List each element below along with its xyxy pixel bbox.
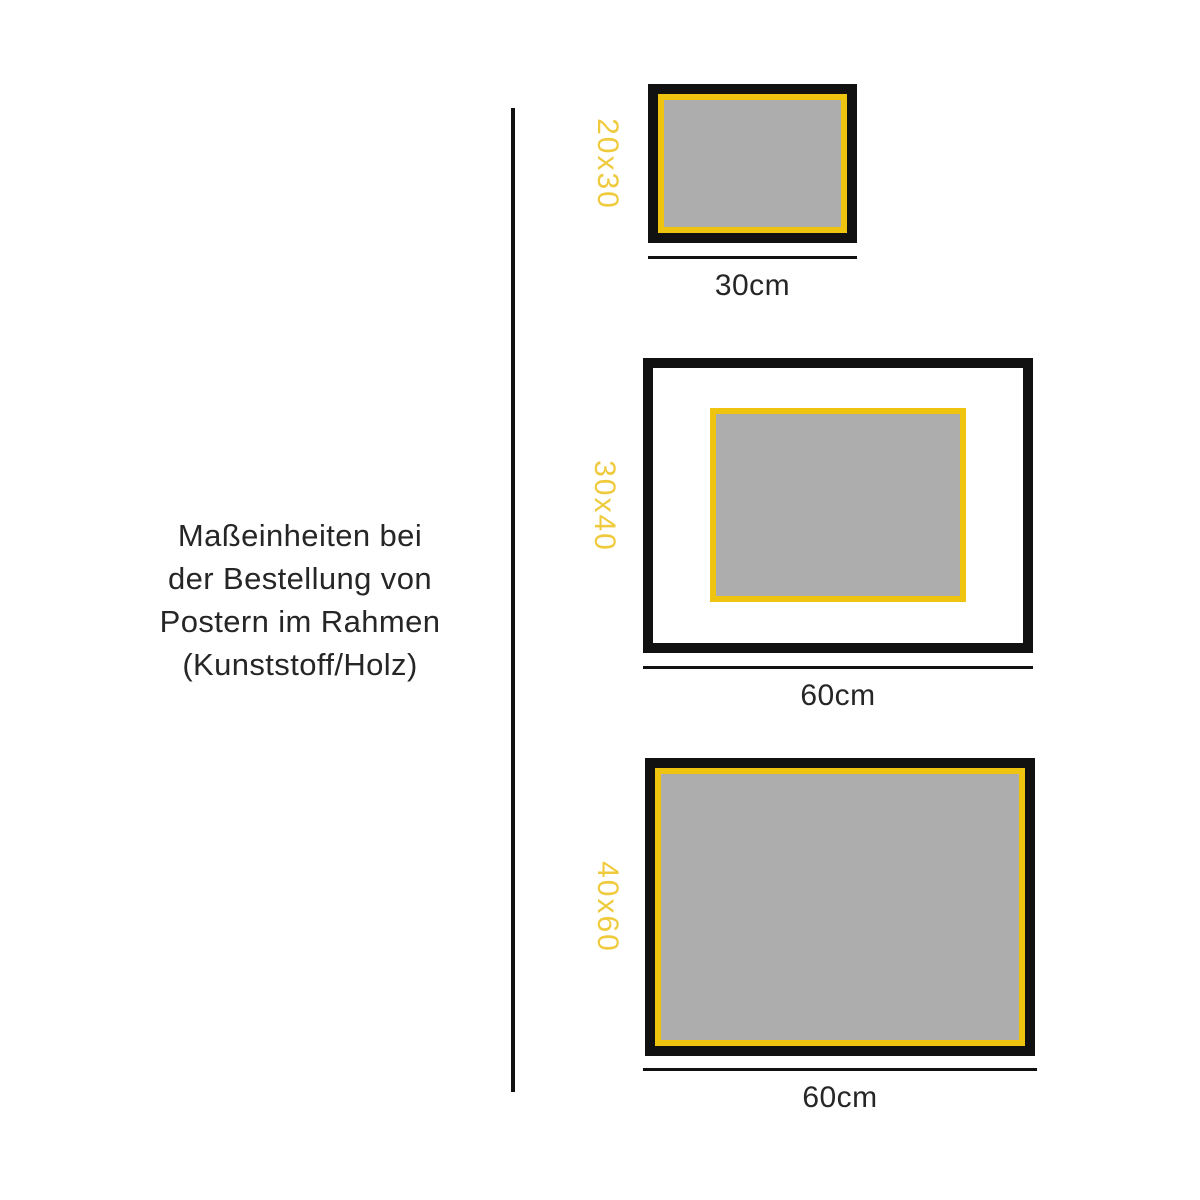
size-label-40x60: 40x60 [590,861,624,953]
width-measure-3: 60cm [643,1068,1037,1115]
width-measure-2: 60cm [643,666,1033,713]
caption: Maßeinheiten bei der Bestellung von Post… [120,514,480,686]
poster-40x60 [655,768,1025,1046]
frame-20x30 [648,84,857,243]
caption-line-4: (Kunststoff/Holz) [120,643,480,686]
size-label-20x30: 20x30 [590,118,624,210]
measure-text-2: 60cm [643,679,1033,713]
frame-40x60 [645,758,1035,1056]
measure-line-1 [648,256,857,259]
caption-line-1: Maßeinheiten bei [120,514,480,557]
poster-size-diagram: Maßeinheiten bei der Bestellung von Post… [0,0,1200,1200]
caption-line-2: der Bestellung von [120,557,480,600]
vertical-divider-line [511,108,515,1092]
frame-30x40 [643,358,1033,653]
measure-line-3 [643,1068,1037,1071]
measure-line-2 [643,666,1033,669]
poster-20x30 [658,94,847,233]
poster-30x40 [710,408,966,602]
caption-line-3: Postern im Rahmen [120,600,480,643]
size-label-30x40: 30x40 [587,460,621,552]
width-measure-1: 30cm [648,256,857,303]
measure-text-3: 60cm [643,1081,1037,1115]
measure-text-1: 30cm [648,269,857,303]
